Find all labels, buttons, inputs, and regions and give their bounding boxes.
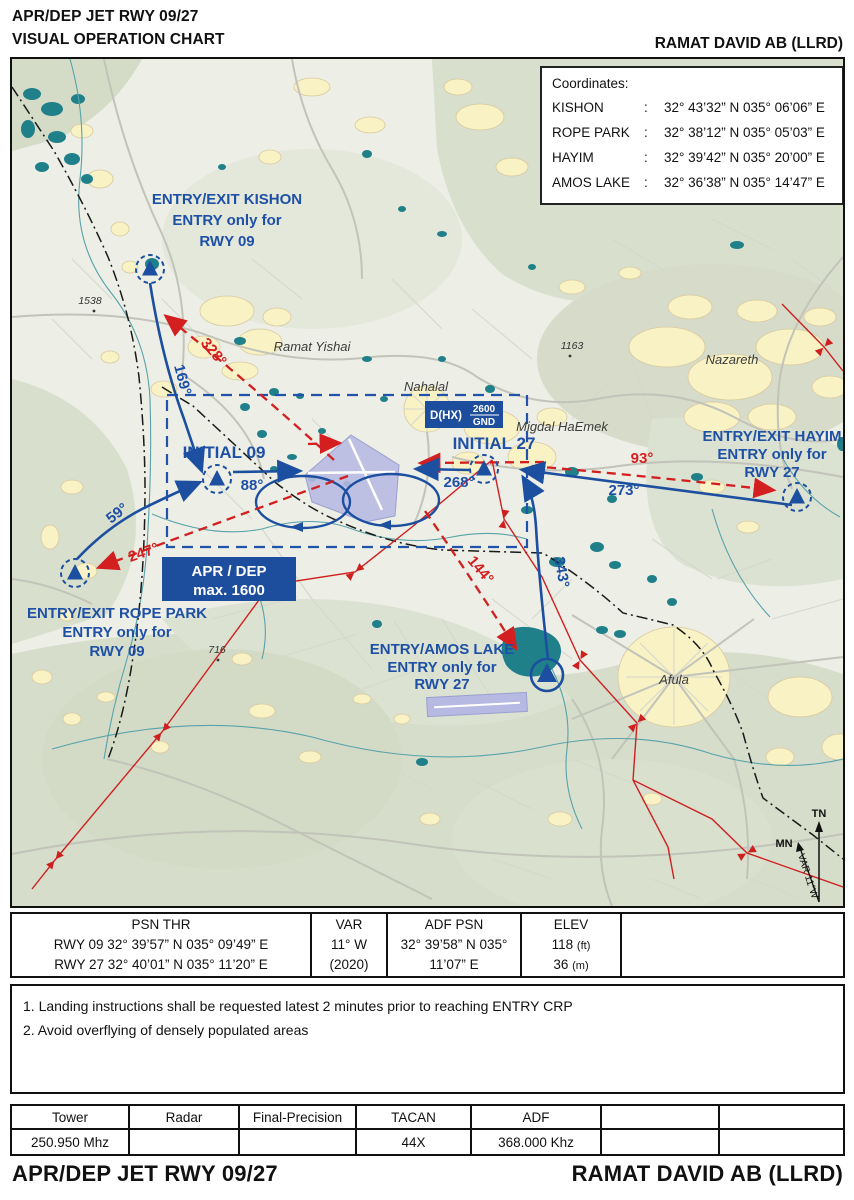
adf-frequency: 368.000 Khz — [472, 1130, 600, 1154]
chart-header: APR/DEP JET RWY 09/27 VISUAL OPERATION C… — [12, 5, 843, 54]
svg-text:ENTRY/EXIT ROPE PARK: ENTRY/EXIT ROPE PARK — [27, 605, 207, 622]
tower-header: Tower — [12, 1106, 128, 1130]
svg-text:ENTRY only for: ENTRY only for — [387, 659, 496, 676]
coordinate-row: KISHON : 32° 43’32” N 035° 06’06” E — [552, 99, 832, 118]
var-cell: VAR 11° W (2020) — [312, 914, 388, 976]
coordinates-title: Coordinates: — [552, 76, 832, 91]
radar-header: Radar — [130, 1106, 238, 1130]
psn-thr-header: PSN THR — [131, 915, 190, 935]
chart-title: APR/DEP JET RWY 09/27 — [12, 5, 843, 28]
freq-col-final-precision: Final-Precision — [240, 1106, 357, 1154]
coordinates-box: Coordinates: KISHON : 32° 43’32” N 035° … — [540, 66, 844, 205]
tower-frequency: 250.950 Mhz — [12, 1130, 128, 1154]
initial-09-label: INITIAL 09 — [183, 443, 266, 462]
adf-psn-cell: ADF PSN 32° 39’58” N 035° 11’07” E — [388, 914, 522, 976]
freq-col-empty-2 — [720, 1106, 843, 1154]
notes-box: 1. Landing instructions shall be request… — [10, 984, 845, 1094]
svg-text:RWY 09: RWY 09 — [89, 643, 144, 660]
tacan-header: TACAN — [357, 1106, 470, 1130]
svg-text:ENTRY/AMOS LAKE: ENTRY/AMOS LAKE — [370, 641, 514, 658]
footer-chart-title: APR/DEP JET RWY 09/27 — [12, 1161, 278, 1187]
position-table: PSN THR RWY 09 32° 39’57” N 035° 09’49” … — [10, 912, 845, 978]
radar-frequency — [130, 1130, 238, 1154]
rwy27-threshold-position: RWY 27 32° 40’01” N 035° 11’20” E — [54, 955, 267, 975]
svg-text:RWY 27: RWY 27 — [744, 464, 799, 481]
elev-m: 36 (m) — [553, 955, 588, 975]
frequency-table: Tower 250.950 Mhz Radar Final-Precision … — [10, 1104, 845, 1156]
elev-header: ELEV — [554, 915, 589, 935]
adf-position-line1: 32° 39’58” N 035° — [401, 935, 508, 955]
place-migdal-haemek: Migdal HaEmek — [516, 419, 609, 434]
elev-ft: 118 (ft) — [552, 935, 591, 955]
spot-elevation-1163: 1163 — [561, 340, 584, 352]
final-precision-header: Final-Precision — [240, 1106, 355, 1130]
svg-text:ENTRY only for: ENTRY only for — [62, 624, 171, 641]
freq-col-tower: Tower 250.950 Mhz — [12, 1106, 130, 1154]
svg-text:RWY 27: RWY 27 — [414, 676, 469, 693]
bearing-88: 88° — [241, 477, 264, 494]
psn-thr-cell: PSN THR RWY 09 32° 39’57” N 035° 09’49” … — [12, 914, 312, 976]
tacan-channel: 44X — [357, 1130, 470, 1154]
coordinate-row: AMOS LAKE : 32° 36’38” N 035° 14’47” E — [552, 174, 832, 193]
svg-text:ENTRY/EXIT HAYIM: ENTRY/EXIT HAYIM — [703, 428, 842, 445]
adf-position-line2: 11’07” E — [429, 955, 478, 975]
rwy09-threshold-position: RWY 09 32° 39’57” N 035° 09’49” E — [54, 935, 268, 955]
true-north-label: TN — [812, 808, 827, 820]
note-2: 2. Avoid overflying of densely populated… — [23, 1019, 832, 1043]
initial-09-symbol — [203, 465, 231, 493]
place-afula: Afula — [658, 672, 689, 687]
danger-area-lower-limit: GND — [473, 417, 495, 428]
var-year: (2020) — [329, 955, 368, 975]
freq-col-adf: ADF 368.000 Khz — [472, 1106, 602, 1154]
final-precision-frequency — [240, 1130, 355, 1154]
bearing-268: 268° — [443, 474, 474, 491]
freq-col-empty-1 — [602, 1106, 720, 1154]
map-frame: APR / DEP max. 1600 D(HX) 2600 GND ENTRY… — [10, 57, 845, 908]
bearing-273: 273° — [608, 482, 639, 499]
place-nahalal: Nahalal — [404, 379, 449, 394]
airport-name: RAMAT DAVID AB (LLRD) — [655, 35, 843, 53]
note-1: 1. Landing instructions shall be request… — [23, 995, 832, 1019]
bearing-343: 343° — [550, 555, 572, 589]
svg-text:ENTRY only for: ENTRY only for — [172, 212, 281, 229]
place-ramat-yishai: Ramat Yishai — [274, 339, 352, 354]
adf-psn-header: ADF PSN — [425, 915, 484, 935]
initial-27-label: INITIAL 27 — [453, 434, 536, 453]
svg-text:ENTRY only for: ENTRY only for — [717, 446, 826, 463]
bearing-144: 144° — [464, 553, 497, 588]
danger-area-upper-limit: 2600 — [473, 404, 496, 415]
svg-text:ENTRY/EXIT KISHON: ENTRY/EXIT KISHON — [152, 191, 302, 208]
spot-elevation-716: 716 — [208, 644, 226, 656]
footer-airport-name: RAMAT DAVID AB (LLRD) — [572, 1161, 843, 1187]
place-nazareth: Nazareth — [706, 352, 759, 367]
empty-cell — [622, 914, 843, 976]
freq-col-tacan: TACAN 44X — [357, 1106, 472, 1154]
apr-dep-altitude-box: APR / DEP max. 1600 — [162, 557, 296, 601]
magnetic-north-label: MN — [775, 838, 792, 850]
danger-area-designator: D(HX) — [430, 410, 462, 422]
elev-cell: ELEV 118 (ft) 36 (m) — [522, 914, 622, 976]
footer-titles: APR/DEP JET RWY 09/27 RAMAT DAVID AB (LL… — [12, 1161, 843, 1187]
danger-area-box: D(HX) 2600 GND — [425, 401, 503, 428]
var-value: 11° W — [331, 935, 367, 955]
apr-dep-box-line1: APR / DEP — [191, 563, 266, 580]
adf-header: ADF — [472, 1106, 600, 1130]
var-header: VAR — [336, 915, 363, 935]
apr-dep-box-line2: max. 1600 — [193, 582, 265, 599]
spot-elevation-1538: 1538 — [78, 295, 102, 307]
coordinate-row: ROPE PARK : 32° 38’12” N 035° 05’03” E — [552, 124, 832, 143]
bearing-93: 93° — [631, 450, 654, 467]
freq-col-radar: Radar — [130, 1106, 240, 1154]
coordinate-row: HAYIM : 32° 39’42” N 035° 20’00” E — [552, 149, 832, 168]
svg-text:RWY 09: RWY 09 — [199, 233, 254, 250]
